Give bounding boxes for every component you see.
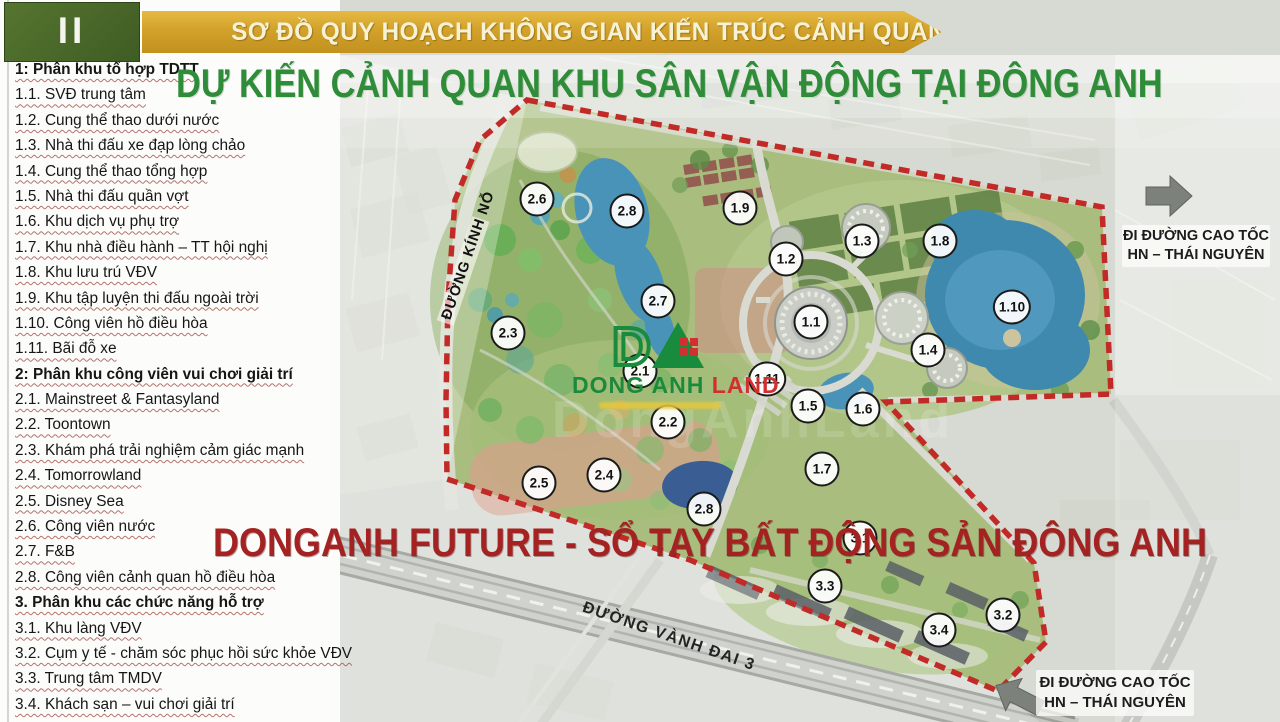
- legend-item: 1.7. Khu nhà điều hành – TT hội nghị: [15, 239, 352, 264]
- legend-item: 1.6. Khu dịch vụ phụ trợ: [15, 213, 352, 238]
- legend-item: 3.4. Khách sạn – vui chơi giải trí: [15, 696, 352, 721]
- highway-note-top: ĐI ĐƯỜNG CAO TỐC HN – THÁI NGUYÊN: [1122, 225, 1270, 267]
- banner-ribbon: SƠ ĐỒ QUY HOẠCH KHÔNG GIAN KIẾN TRÚC CẢN…: [142, 11, 942, 53]
- legend-item: 2.5. Disney Sea: [15, 493, 352, 518]
- section-number-box: II: [4, 2, 140, 62]
- highway-note-line2: HN – THÁI NGUYÊN: [1122, 246, 1270, 265]
- legend-item: 1.5. Nhà thi đấu quần vợt: [15, 188, 352, 213]
- main-title: DỰ KIẾN CẢNH QUAN KHU SÂN VẬN ĐỘNG TẠI Đ…: [176, 62, 1163, 107]
- stadium: [775, 287, 847, 359]
- legend-item: 1.8. Khu lưu trú VĐV: [15, 264, 352, 289]
- logo-name-red: LAND: [712, 372, 780, 398]
- legend-item: 1.10. Công viên hồ điều hòa: [15, 315, 352, 340]
- legend-item: 3.3. Trung tâm TMDV: [15, 670, 352, 695]
- legend-item: 3. Phân khu các chức năng hỗ trợ: [15, 594, 352, 619]
- banner-title: SƠ ĐỒ QUY HOẠCH KHÔNG GIAN KIẾN TRÚC CẢN…: [142, 18, 946, 47]
- legend-item: 2.1. Mainstreet & Fantasyland: [15, 391, 352, 416]
- legend-item: 2.8. Công viên cảnh quan hồ điều hòa: [15, 569, 352, 594]
- legend-item: 2.4. Tomorrowland: [15, 467, 352, 492]
- logo-name-green: DONG ANH: [572, 372, 704, 398]
- slide-header: II SƠ ĐỒ QUY HOẠCH KHÔNG GIAN KIẾN TRÚC …: [0, 0, 1280, 64]
- legend-item: 2.2. Toontown: [15, 416, 352, 441]
- highway-note-bottom: ĐI ĐƯỜNG CAO TỐC HN – THÁI NGUYÊN: [1036, 670, 1194, 716]
- legend-panel: 1: Phân khu tổ hợp TDTT1.1. SVĐ trung tâ…: [0, 0, 340, 722]
- logo-name: DONG ANH LAND: [572, 372, 747, 399]
- section-number: II: [58, 12, 87, 53]
- panel-divider: [7, 0, 9, 722]
- dong-anh-land-logo: D DONG ANH LAND: [572, 318, 747, 409]
- highway-note-line1: ĐI ĐƯỜNG CAO TỐC: [1122, 227, 1270, 246]
- legend-item: 2.3. Khám phá trải nghiệm cảm giác mạnh: [15, 442, 352, 467]
- legend-item: 1.11. Bãi đỗ xe: [15, 340, 352, 365]
- legend-item: 3.2. Cụm y tế - chăm sóc phục hồi sức kh…: [15, 645, 352, 670]
- highway-note-line1: ĐI ĐƯỜNG CAO TỐC: [1036, 673, 1194, 693]
- legend-list: 1: Phân khu tổ hợp TDTT1.1. SVĐ trung tâ…: [15, 61, 352, 721]
- svg-text:D: D: [612, 318, 651, 370]
- legend-item: 1.4. Cung thể thao tổng hợp: [15, 163, 352, 188]
- logo-tagline: [599, 402, 721, 409]
- legend-item: 1.3. Nhà thi đấu xe đạp lòng chảo: [15, 137, 352, 162]
- da-monogram-icon: D: [610, 318, 710, 370]
- legend-item: 1.2. Cung thể thao dưới nước: [15, 112, 352, 137]
- highway-note-line2: HN – THÁI NGUYÊN: [1036, 693, 1194, 713]
- legend-item: 2: Phân khu công viên vui chơi giải trí: [15, 366, 352, 391]
- legend-item: 1.9. Khu tập luyện thi đấu ngoài trời: [15, 290, 352, 315]
- red-banner-text: DONGANH FUTURE - SỔ TAY BẤT ĐỘNG SẢN ĐÔN…: [213, 521, 1207, 566]
- legend-item: 3.1. Khu làng VĐV: [15, 620, 352, 645]
